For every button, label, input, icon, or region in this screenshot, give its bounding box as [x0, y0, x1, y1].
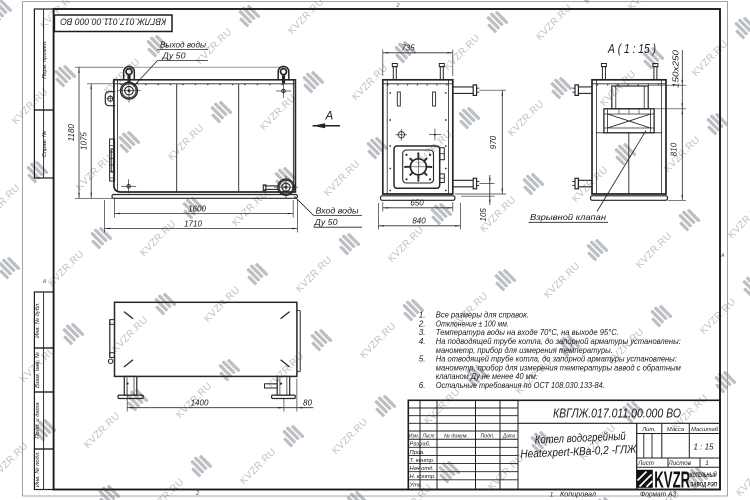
svg-text:Перв. примен.: Перв. примен. [42, 40, 48, 79]
svg-text:2: 2 [395, 3, 399, 9]
svg-text:970: 970 [489, 135, 498, 149]
svg-text:манометр, прибор для измерения: манометр, прибор для измерения температу… [436, 363, 681, 372]
svg-text:Подп.: Подп. [481, 433, 495, 439]
svg-text:манометр, прибор для измерения: манометр, прибор для измерения температу… [436, 346, 613, 355]
svg-text:80: 80 [303, 399, 312, 408]
svg-text:3.: 3. [419, 328, 426, 337]
svg-text:А ( 1 : 15 ): А ( 1 : 15 ) [607, 42, 656, 56]
svg-text:105: 105 [479, 208, 488, 222]
svg-text:№ докум.: № докум. [444, 433, 468, 439]
svg-text:А: А [324, 111, 333, 123]
svg-text:На подводящей трубе котла, до: На подводящей трубе котла, до запорной а… [436, 337, 681, 346]
svg-text:1710: 1710 [184, 219, 202, 228]
svg-text:840: 840 [412, 217, 426, 226]
svg-text:Т. контр.: Т. контр. [410, 458, 435, 464]
svg-text:Взам. инв. №: Взам. инв. № [35, 352, 41, 388]
svg-text:Дата: Дата [502, 433, 515, 439]
svg-text:Лит.: Лит. [641, 427, 656, 433]
svg-text:Копировал: Копировал [560, 491, 596, 498]
svg-text:735: 735 [401, 43, 415, 52]
svg-text:1600: 1600 [188, 204, 206, 213]
svg-text:810: 810 [670, 142, 679, 156]
svg-text:Взрывной клапан: Взрывной клапан [530, 212, 606, 222]
svg-text:1180: 1180 [67, 124, 76, 142]
svg-text:Разраб.: Разраб. [410, 442, 431, 448]
svg-text:Пров.: Пров. [410, 450, 425, 456]
svg-text:Остальные требования по ОСТ 10: Остальные требования по ОСТ 108.030.133-… [436, 381, 605, 390]
svg-text:2: 2 [195, 491, 200, 497]
svg-text:КВГЛЖ.017.011.00.000 ВО: КВГЛЖ.017.011.00.000 ВО [60, 17, 167, 28]
svg-text:1: 1 [705, 460, 708, 467]
svg-text:1.: 1. [419, 311, 426, 320]
svg-text:Вход воды: Вход воды [316, 205, 359, 215]
svg-text:клапаном Ду не менее 40 мм.: клапаном Ду не менее 40 мм. [436, 372, 538, 381]
svg-text:Температура воды на входе 70°С: Температура воды на входе 70°С, на выход… [436, 328, 619, 337]
svg-text:KVZR: KVZR [654, 468, 690, 494]
svg-text:Н. контр.: Н. контр. [410, 474, 436, 480]
svg-text:Выход воды: Выход воды [160, 40, 206, 50]
svg-text:КОТЕЛЬНЫЙ: КОТЕЛЬНЫЙ [690, 470, 717, 479]
svg-text:Справ. №: Справ. № [42, 131, 48, 157]
svg-text:Инв. № дубл.: Инв. № дубл. [35, 302, 41, 338]
svg-text:Масса: Масса [667, 427, 685, 433]
svg-text:Утв.: Утв. [409, 482, 423, 488]
svg-text:Изм.: Изм. [409, 433, 419, 439]
svg-text:Ду 50: Ду 50 [161, 51, 185, 61]
svg-text:КВГЛЖ.017.011.00.000 ВО: КВГЛЖ.017.011.00.000 ВО [553, 405, 681, 420]
svg-text:Лист: Лист [637, 460, 654, 467]
svg-text:5.: 5. [419, 355, 426, 364]
svg-text:Отклонение ± 100 мм.: Отклонение ± 100 мм. [436, 319, 509, 328]
svg-text:А: А [42, 279, 47, 285]
svg-text:Подп. и дата: Подп. и дата [35, 402, 41, 439]
svg-text:6.: 6. [419, 381, 426, 390]
svg-text:150х250: 150х250 [672, 49, 681, 88]
svg-text:Ду 50: Ду 50 [313, 217, 337, 227]
svg-text:Инв. № подл.: Инв. № подл. [35, 451, 41, 487]
svg-text:Масштаб: Масштаб [691, 427, 719, 433]
svg-text:1: 1 [550, 491, 554, 498]
svg-text:1 : 15: 1 : 15 [693, 443, 714, 452]
svg-text:650: 650 [410, 199, 424, 208]
svg-text:4.: 4. [419, 337, 426, 346]
svg-text:1400: 1400 [191, 399, 209, 408]
svg-text:2.: 2. [418, 319, 426, 328]
svg-text:А: А [720, 253, 725, 259]
svg-text:Все размеры для справок.: Все размеры для справок. [436, 311, 529, 320]
svg-text:ЗАВОД РЭП: ЗАВОД РЭП [690, 481, 717, 488]
svg-text:Формат А3: Формат А3 [640, 491, 676, 498]
svg-text:Листов: Листов [667, 460, 691, 467]
svg-text:На отводящей трубе котла, до з: На отводящей трубе котла, до запорной ар… [436, 355, 677, 364]
svg-text:Нач.отд.: Нач.отд. [410, 466, 434, 472]
svg-text:Лист: Лист [422, 433, 436, 439]
svg-text:1075: 1075 [79, 132, 88, 150]
